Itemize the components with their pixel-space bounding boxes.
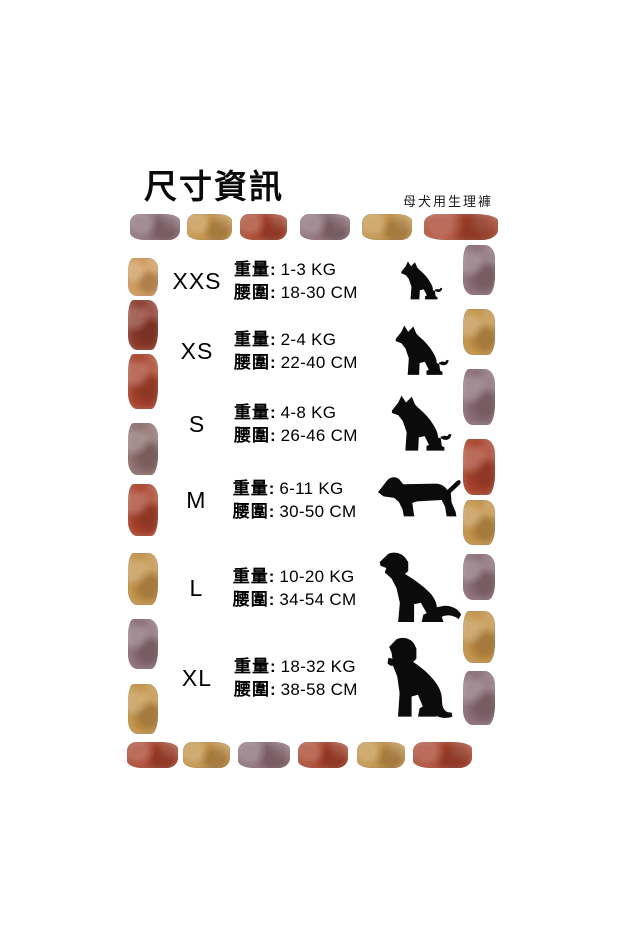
weight-label: 重量: [234,330,277,349]
waist-value: 26-46 CM [281,426,358,445]
weight-spec: 重量:1-3 KG [234,258,382,281]
waist-label: 腰圍: [234,680,277,699]
brushstroke-bottom-3 [298,742,348,768]
brushstroke-right-5 [463,554,495,600]
brushstroke-top-3 [300,214,350,240]
brushstroke-left-3 [128,423,158,475]
weight-label: 重量: [233,567,276,586]
size-specs: 重量:18-32 KG腰圍:38-58 CM [232,655,382,701]
brushstroke-right-2 [463,369,495,425]
brushstroke-left-4 [128,484,158,536]
brushstroke-left-2 [128,354,158,409]
brushstroke-right-7 [463,671,495,725]
sitting-retriever-icon [378,551,462,625]
waist-value: 18-30 CM [281,283,358,302]
waist-label: 腰圍: [234,283,277,302]
size-specs: 重量:6-11 KG腰圍:30-50 CM [231,477,378,523]
size-specs: 重量:10-20 KG腰圍:34-54 CM [231,565,378,611]
weight-label: 重量: [234,403,277,422]
brushstroke-bottom-0 [127,742,178,768]
waist-label: 腰圍: [233,502,276,521]
brushstroke-left-0 [128,258,158,296]
waist-label: 腰圍: [234,353,277,372]
size-chart-page: 尺寸資訊 母犬用生理褲 XXS重量:1-3 KG腰圍:18-30 CMXS重量:… [0,0,621,931]
brushstroke-right-4 [463,500,495,545]
brushstroke-top-4 [362,214,412,240]
brushstroke-top-2 [240,214,287,240]
brushstroke-left-1 [128,300,158,350]
size-label: M [162,487,231,514]
size-row-l: L重量:10-20 KG腰圍:34-54 CM [162,548,462,628]
brushstroke-top-1 [187,214,232,240]
weight-label: 重量: [234,260,277,279]
waist-spec: 腰圍:34-54 CM [233,588,378,611]
weight-value: 18-32 KG [281,657,356,676]
page-title: 尺寸資訊 [144,160,284,208]
weight-spec: 重量:18-32 KG [234,655,382,678]
brushstroke-top-5 [424,214,498,240]
waist-value: 34-54 CM [279,590,356,609]
weight-label: 重量: [233,479,276,498]
weight-spec: 重量:6-11 KG [233,477,378,500]
waist-value: 38-58 CM [281,680,358,699]
size-specs: 重量:1-3 KG腰圍:18-30 CM [232,258,382,304]
weight-spec: 重量:2-4 KG [234,328,382,351]
size-row-xs: XS重量:2-4 KG腰圍:22-40 CM [162,318,462,384]
waist-value: 22-40 CM [281,353,358,372]
size-row-s: S重量:4-8 KG腰圍:26-46 CM [162,390,462,458]
weight-value: 6-11 KG [279,479,343,498]
size-specs: 重量:2-4 KG腰圍:22-40 CM [232,328,382,374]
sitting-shepherd-icon [382,395,462,453]
brushstroke-bottom-2 [238,742,290,768]
weight-value: 4-8 KG [281,403,337,422]
waist-value: 30-50 CM [279,502,356,521]
sitting-shepherd-puppy-icon [382,261,462,301]
sitting-shepherd-small-icon [382,325,462,377]
size-label: XXS [162,268,232,295]
brushstroke-bottom-1 [183,742,230,768]
weight-label: 重量: [234,657,277,676]
size-label: XS [162,338,232,365]
waist-spec: 腰圍:18-30 CM [234,281,382,304]
brushstroke-left-5 [128,553,158,605]
weight-spec: 重量:10-20 KG [233,565,378,588]
size-row-xxs: XXS重量:1-3 KG腰圍:18-30 CM [162,250,462,312]
waist-label: 腰圍: [234,426,277,445]
weight-value: 1-3 KG [281,260,337,279]
waist-spec: 腰圍:30-50 CM [233,500,378,523]
waist-spec: 腰圍:22-40 CM [234,351,382,374]
page-subtitle: 母犬用生理褲 [403,191,493,210]
size-label: S [162,411,232,438]
sitting-labrador-icon [382,636,462,720]
brushstroke-right-1 [463,309,495,355]
weight-spec: 重量:4-8 KG [234,401,382,424]
brushstroke-right-6 [463,611,495,663]
brushstroke-top-0 [130,214,180,240]
brushstroke-right-3 [463,439,495,495]
brushstroke-bottom-5 [413,742,472,768]
size-label: L [162,575,231,602]
size-row-m: M重量:6-11 KG腰圍:30-50 CM [162,464,462,536]
size-row-xl: XL重量:18-32 KG腰圍:38-58 CM [162,634,462,722]
waist-label: 腰圍: [233,590,276,609]
brushstroke-bottom-4 [357,742,405,768]
brushstroke-left-6 [128,619,158,669]
size-specs: 重量:4-8 KG腰圍:26-46 CM [232,401,382,447]
brushstroke-right-0 [463,245,495,295]
dachshund-icon [378,475,462,525]
brushstroke-left-7 [128,684,158,734]
waist-spec: 腰圍:26-46 CM [234,424,382,447]
size-label: XL [162,665,232,692]
weight-value: 10-20 KG [279,567,354,586]
weight-value: 2-4 KG [281,330,337,349]
waist-spec: 腰圍:38-58 CM [234,678,382,701]
